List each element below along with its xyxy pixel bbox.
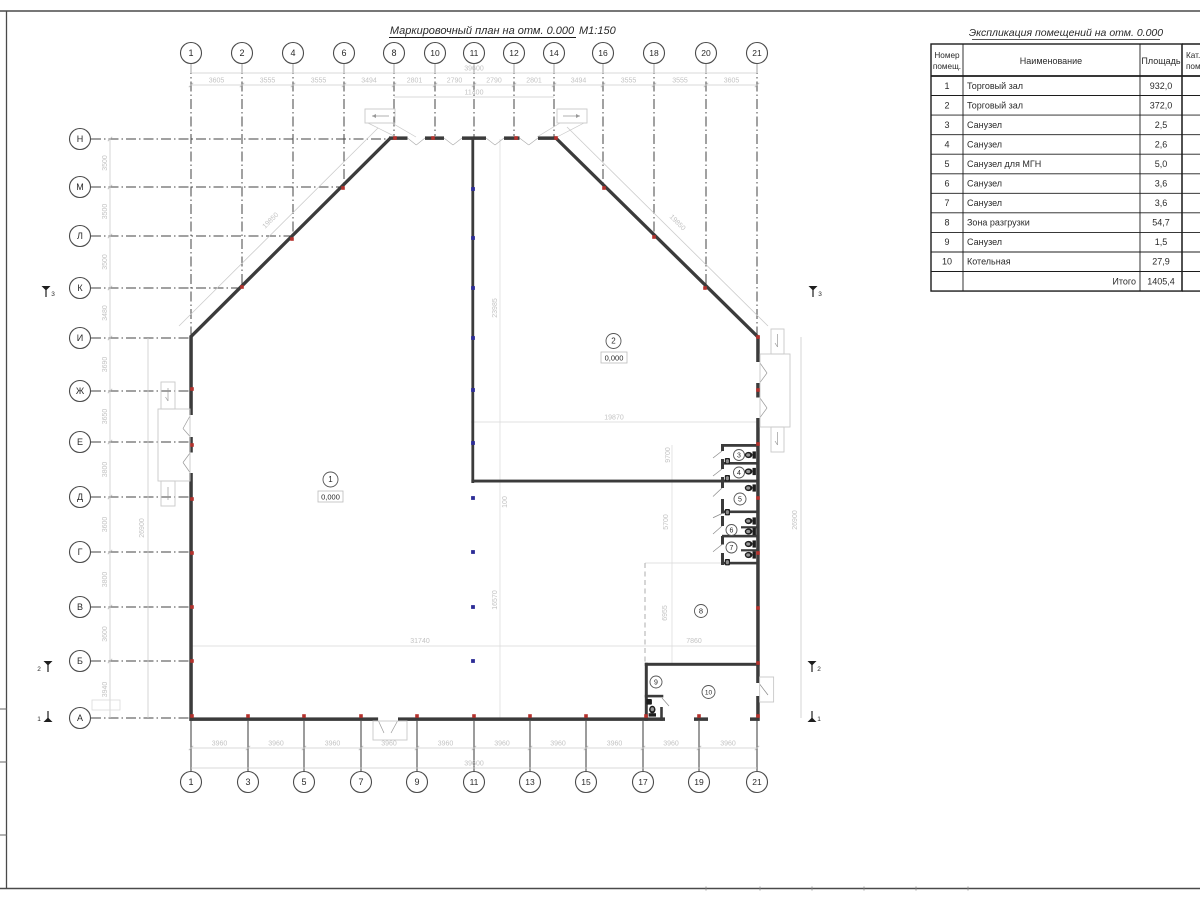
svg-text:3494: 3494	[361, 78, 377, 85]
svg-text:Маркировочный план на отм. 0.0: Маркировочный план на отм. 0.000	[390, 25, 575, 37]
svg-text:Н: Н	[77, 134, 84, 144]
svg-text:В: В	[77, 602, 83, 612]
svg-text:0,000: 0,000	[321, 493, 340, 502]
svg-text:16570: 16570	[492, 590, 499, 610]
svg-text:7860: 7860	[686, 638, 702, 645]
svg-text:8: 8	[699, 607, 703, 616]
svg-text:17: 17	[638, 777, 648, 787]
svg-text:3960: 3960	[438, 741, 454, 748]
svg-text:Санузел для МГН: Санузел для МГН	[967, 159, 1041, 169]
svg-text:Санузел: Санузел	[967, 120, 1002, 130]
svg-text:3: 3	[245, 777, 250, 787]
svg-text:2801: 2801	[407, 78, 423, 85]
svg-text:2801: 2801	[526, 78, 542, 85]
svg-text:3960: 3960	[212, 741, 228, 748]
svg-text:3960: 3960	[325, 741, 341, 748]
svg-text:Ж: Ж	[76, 386, 85, 396]
svg-text:15: 15	[581, 777, 591, 787]
svg-text:8: 8	[391, 48, 396, 58]
svg-text:10: 10	[705, 690, 713, 697]
svg-text:4: 4	[944, 139, 949, 149]
svg-text:Санузел: Санузел	[967, 179, 1002, 189]
svg-text:2: 2	[239, 48, 244, 58]
svg-text:5: 5	[944, 159, 949, 169]
svg-text:6955: 6955	[662, 605, 669, 621]
svg-text:100: 100	[502, 496, 509, 508]
svg-text:3605: 3605	[724, 78, 740, 85]
svg-text:М: М	[76, 182, 84, 192]
svg-text:Кат.: Кат.	[1186, 51, 1200, 60]
svg-text:10: 10	[430, 48, 440, 58]
svg-text:3605: 3605	[209, 78, 225, 85]
svg-text:3940: 3940	[102, 682, 109, 698]
svg-text:1: 1	[328, 475, 333, 484]
svg-text:помещ.: помещ.	[933, 62, 961, 71]
svg-text:5700: 5700	[663, 514, 670, 530]
svg-text:19: 19	[694, 777, 704, 787]
svg-text:3800: 3800	[102, 462, 109, 478]
svg-text:16: 16	[598, 48, 608, 58]
svg-text:39600: 39600	[464, 761, 484, 768]
svg-text:М1:150: М1:150	[579, 25, 617, 37]
svg-text:3960: 3960	[268, 741, 284, 748]
svg-text:3690: 3690	[102, 357, 109, 373]
svg-text:3555: 3555	[672, 78, 688, 85]
svg-text:21: 21	[752, 48, 762, 58]
svg-text:3960: 3960	[494, 741, 510, 748]
svg-text:3650: 3650	[102, 409, 109, 425]
svg-text:12: 12	[509, 48, 519, 58]
svg-text:3: 3	[818, 291, 822, 298]
svg-text:3960: 3960	[720, 741, 736, 748]
svg-text:3960: 3960	[663, 741, 679, 748]
svg-text:21: 21	[752, 777, 762, 787]
svg-text:11: 11	[470, 777, 479, 787]
svg-text:3600: 3600	[102, 517, 109, 533]
svg-text:2: 2	[611, 337, 616, 346]
svg-text:2790: 2790	[486, 78, 502, 85]
svg-text:Е: Е	[77, 437, 83, 447]
svg-text:5,0: 5,0	[1155, 159, 1168, 169]
svg-text:5: 5	[738, 497, 742, 504]
svg-text:14: 14	[549, 48, 559, 58]
svg-text:26900: 26900	[792, 510, 799, 530]
svg-text:К: К	[77, 283, 83, 293]
svg-text:Итого: Итого	[1112, 276, 1136, 286]
svg-text:7: 7	[944, 198, 949, 208]
svg-text:6: 6	[341, 48, 346, 58]
svg-text:И: И	[77, 333, 83, 343]
svg-text:18: 18	[649, 48, 659, 58]
svg-text:31740: 31740	[410, 638, 430, 645]
svg-text:Санузел: Санузел	[967, 139, 1002, 149]
svg-text:372,0: 372,0	[1150, 100, 1173, 110]
svg-text:4: 4	[737, 470, 741, 477]
svg-text:Номер: Номер	[934, 51, 960, 60]
svg-text:3,6: 3,6	[1155, 179, 1168, 189]
svg-text:Г: Г	[78, 547, 83, 557]
svg-text:7: 7	[730, 545, 734, 552]
svg-text:26900: 26900	[139, 518, 146, 538]
svg-text:3,6: 3,6	[1155, 198, 1168, 208]
svg-text:3494: 3494	[571, 78, 587, 85]
svg-text:Д: Д	[77, 492, 83, 502]
svg-text:Экспликация помещений на отм.: Экспликация помещений на отм. 0.000	[969, 27, 1163, 39]
svg-text:9700: 9700	[665, 447, 672, 463]
svg-text:1: 1	[817, 716, 821, 723]
svg-text:3800: 3800	[102, 572, 109, 588]
svg-text:2: 2	[944, 100, 949, 110]
svg-text:7: 7	[358, 777, 363, 787]
svg-text:932,0: 932,0	[1150, 81, 1173, 91]
svg-text:А: А	[77, 713, 83, 723]
svg-text:Торговый зал: Торговый зал	[967, 100, 1023, 110]
svg-text:Санузел: Санузел	[967, 237, 1002, 247]
svg-text:11: 11	[470, 48, 479, 58]
svg-text:6: 6	[730, 528, 734, 535]
svg-text:8: 8	[944, 218, 949, 228]
svg-text:Торговый зал: Торговый зал	[967, 81, 1023, 91]
svg-text:3: 3	[944, 120, 949, 130]
svg-text:2,6: 2,6	[1155, 139, 1168, 149]
svg-text:19870: 19870	[604, 415, 624, 422]
svg-text:3960: 3960	[381, 741, 397, 748]
svg-text:2,5: 2,5	[1155, 120, 1168, 130]
svg-text:4: 4	[290, 48, 295, 58]
svg-text:1: 1	[188, 48, 193, 58]
svg-text:10: 10	[942, 257, 952, 267]
svg-text:1: 1	[37, 716, 41, 723]
svg-text:Котельная: Котельная	[967, 257, 1011, 267]
svg-text:20: 20	[701, 48, 711, 58]
svg-text:3500: 3500	[102, 155, 109, 171]
svg-text:23985: 23985	[492, 298, 499, 318]
svg-text:11400: 11400	[465, 90, 484, 97]
svg-text:2: 2	[817, 666, 821, 673]
svg-text:27,9: 27,9	[1152, 257, 1170, 267]
svg-text:3500: 3500	[102, 204, 109, 220]
svg-text:Л: Л	[77, 231, 83, 241]
svg-text:6: 6	[944, 179, 949, 189]
svg-text:3500: 3500	[102, 254, 109, 270]
svg-text:3555: 3555	[260, 78, 276, 85]
svg-text:1,5: 1,5	[1155, 237, 1168, 247]
svg-text:9: 9	[944, 237, 949, 247]
svg-text:1: 1	[188, 777, 193, 787]
svg-text:3600: 3600	[102, 626, 109, 642]
svg-text:39600: 39600	[464, 66, 484, 73]
svg-text:Площадь: Площадь	[1141, 56, 1180, 66]
svg-text:3: 3	[737, 453, 741, 460]
svg-text:Зона разгрузки: Зона разгрузки	[967, 218, 1030, 228]
svg-text:3960: 3960	[607, 741, 623, 748]
svg-text:3: 3	[51, 291, 55, 298]
svg-text:пом: пом	[1186, 62, 1200, 71]
svg-text:13: 13	[525, 777, 535, 787]
svg-text:3555: 3555	[621, 78, 637, 85]
svg-text:3555: 3555	[311, 78, 327, 85]
svg-text:2790: 2790	[447, 78, 463, 85]
svg-text:2: 2	[37, 666, 41, 673]
svg-text:0,000: 0,000	[605, 354, 624, 363]
svg-text:5: 5	[301, 777, 306, 787]
svg-text:1405,4: 1405,4	[1147, 276, 1175, 286]
svg-text:9: 9	[414, 777, 419, 787]
svg-text:54,7: 54,7	[1152, 218, 1170, 228]
svg-text:Наименование: Наименование	[1020, 56, 1082, 66]
svg-text:Санузел: Санузел	[967, 198, 1002, 208]
svg-text:3960: 3960	[550, 741, 566, 748]
svg-text:9: 9	[654, 680, 658, 687]
svg-text:1: 1	[944, 81, 949, 91]
svg-text:Б: Б	[77, 656, 83, 666]
svg-text:3480: 3480	[102, 305, 109, 321]
